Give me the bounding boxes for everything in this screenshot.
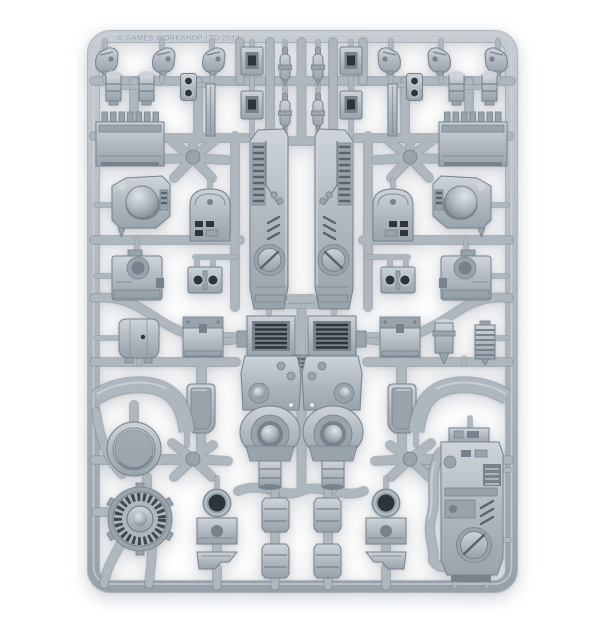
pump-nozzle (259, 461, 281, 490)
runner-hub (186, 452, 200, 466)
boss-block (112, 250, 164, 300)
vent-block (96, 112, 164, 166)
runner-hub (186, 150, 200, 164)
canister (106, 71, 121, 105)
girder-strip (206, 84, 215, 136)
engine-unit (441, 428, 503, 582)
storage-crate (183, 317, 223, 357)
twin-hole-block (188, 267, 222, 293)
socket-block (241, 47, 263, 75)
socket-block (241, 91, 263, 119)
small-box (262, 498, 289, 532)
finned-cylinder (475, 321, 495, 365)
armour-tower (250, 129, 288, 309)
small-box (262, 544, 289, 578)
round-dish (107, 422, 161, 476)
rounded-tank (119, 319, 159, 363)
canister (139, 71, 154, 105)
slot-panel (190, 189, 230, 241)
bolt-plate (181, 74, 197, 101)
sprue-product-photo: © GAMES WORKSHOP LTD 2014 © GAMES WORKSH… (0, 0, 600, 620)
sprue-illustration: © GAMES WORKSHOP LTD 2014 © GAMES WORKSH… (0, 0, 600, 620)
embossed-copyright: © GAMES WORKSHOP LTD 2014 (118, 35, 241, 43)
